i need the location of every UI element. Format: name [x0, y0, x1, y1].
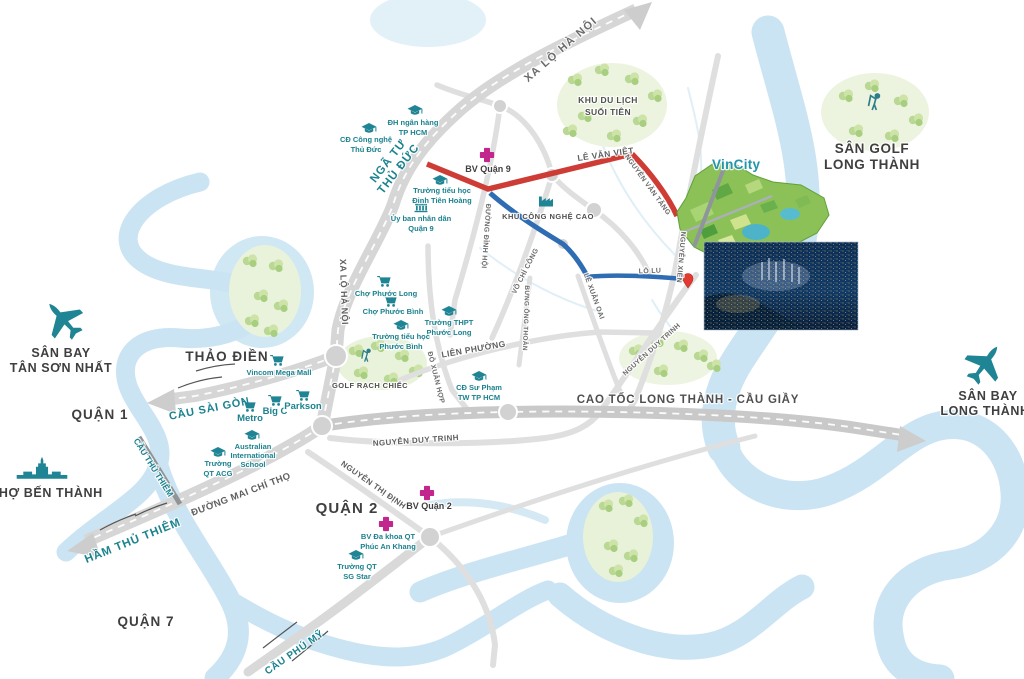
poi-label-acg-1: Trường: [204, 459, 231, 468]
road-label-cao-toc: CAO TỐC LONG THÀNH - CẦU GIẦY: [577, 392, 800, 406]
market-icon-cho-phuoc-long: [377, 276, 390, 287]
district-label-quan-7: QUẬN 7: [117, 614, 174, 629]
poi-label-sg-star-2: SG Star: [343, 572, 371, 581]
map-canvas: XA LỘ HÀ NỘI NGÃ TƯ THỦ ĐỨC XA LỘ HÀ NỘI…: [0, 0, 1024, 679]
poi-label-pak-2: Phúc An Khang: [360, 542, 416, 551]
road-lo-lu-blue: [586, 276, 683, 279]
area-labels: QUẬN 1 QUẬN 2 QUẬN 7 THẢO ĐIỀN KHU DU LỊ…: [0, 95, 1024, 629]
airport-label-lt-2: LONG THÀNH: [940, 403, 1024, 418]
poi-label-thpt-pl-1: Trường THPT: [425, 318, 474, 327]
poi-label-parkson: Parkson: [284, 401, 322, 412]
road-label-lo-lu: LÒ LU: [639, 266, 662, 276]
ben-thanh-market-icon: [17, 457, 68, 479]
poi-label-dth-2: Đinh Tiên Hoàng: [412, 196, 472, 205]
poi-label-thpt-pl-2: Phước Long: [427, 328, 472, 337]
airplane-icon-long-thanh: [957, 335, 1012, 391]
school-icon-dh-ngan-hang: [408, 105, 423, 115]
school-icon-truong-acg: [211, 447, 226, 457]
school-icon-cd-cong-nghe: [362, 123, 377, 133]
poi-label-th-pb-2: Phước Bình: [379, 342, 423, 351]
landmark-label-suoi-tien-1: KHU DU LỊCH: [578, 95, 638, 105]
market-icon-parkson: [296, 390, 309, 401]
poi-label-uy-ban-2: Quận 9: [408, 224, 433, 233]
poi-label-cd-su-pham-2: TW TP HCM: [458, 393, 500, 402]
district-label-thao-dien: THẢO ĐIỀN: [185, 349, 268, 364]
poi-label-australian-1: Australian: [235, 442, 272, 451]
poi-label-sg-star-1: Trường QT: [337, 562, 377, 571]
road-route-blue: [490, 193, 586, 274]
landmark-label-suoi-tien-2: SUỐI TIÊN: [585, 106, 631, 117]
school-icon-th-phuoc-binh: [394, 320, 409, 330]
airport-label-lt-1: SÂN BAY: [958, 388, 1017, 403]
market-icon-big-c: [268, 395, 281, 406]
poi-label-pak-1: BV Đa khoa QT: [361, 532, 416, 541]
poi-label-th-pb-1: Trường tiểu học: [372, 332, 430, 341]
airplane-icon-tan-son-nhat: [35, 291, 91, 347]
school-icon-sg-star: [349, 550, 364, 560]
poi-label-dh-ngan-hang-1: ĐH ngân hàng: [388, 118, 439, 127]
landmark-label-khu-cong-nghe-cao: KHU CÔNG NGHỆ CAO: [502, 212, 594, 221]
vincity-label: VinCity: [712, 157, 761, 172]
district-label-quan-2: QUẬN 2: [316, 499, 379, 517]
road-label-xa-lo-ha-noi-side: XA LỘ HÀ NỘI: [338, 259, 351, 325]
landmark-label-golf-rach-chiec: GOLF RẠCH CHIẾC: [332, 380, 408, 390]
hospital-icon-phuc-an-khang: [380, 518, 393, 531]
poi-label-acg-2: QT ACG: [204, 469, 233, 478]
poi-label-dth-1: Trường tiểu học: [413, 186, 471, 195]
market-icon-vincom: [270, 355, 283, 366]
road-label-nguyen-van-tang: NGUYỄN VĂN TĂNG: [623, 152, 673, 217]
school-icon-dinh-tien-hoang: [433, 175, 448, 185]
road-nguyen-van-tang-red: [632, 154, 677, 216]
poi-label-dh-ngan-hang-2: TP HCM: [399, 128, 428, 137]
poi-label-australian-3: School: [240, 460, 265, 469]
poi-label-uy-ban-1: Ủy ban nhân dân: [391, 214, 452, 223]
poi-label-cd-cong-nghe-2: Thủ Đức: [351, 145, 382, 154]
airport-label-tsn-1: SÂN BAY: [31, 345, 90, 360]
district-label-quan-1: QUẬN 1: [71, 407, 128, 422]
poi-label-australian-2: International: [230, 451, 275, 460]
hospital-icon-bv-quan-2: [421, 487, 434, 500]
landmark-label-golf-lt-1: SÂN GOLF: [835, 141, 910, 156]
poi-label-cd-su-pham-1: CĐ Sư Phạm: [456, 383, 502, 392]
poi-label-bv-quan-9: BV Quận 9: [465, 164, 511, 174]
poi-label-cd-cong-nghe-1: CĐ Công nghệ: [340, 135, 392, 144]
location-map: XA LỘ HÀ NỘI NGÃ TƯ THỦ ĐỨC XA LỘ HÀ NỘI…: [0, 0, 1024, 679]
landmark-label-cho-ben-thanh: CHỢ BẾN THÀNH: [0, 485, 103, 500]
school-icon-australian: [245, 430, 260, 440]
poi-label-metro: Metro: [237, 413, 263, 424]
poi-label-bv-quan-2: BV Quận 2: [406, 501, 452, 511]
school-icon-cd-su-pham: [472, 371, 487, 381]
poi-label-cho-phuoc-long: Chợ Phước Long: [355, 289, 418, 298]
poi-label-vincom: Vincom Mega Mall: [247, 368, 312, 377]
aerial-photo-inset: [704, 242, 858, 330]
poi-label-cho-phuoc-binh: Chợ Phước Bình: [363, 307, 424, 316]
airport-label-tsn-2: TÂN SƠN NHẤT: [10, 360, 113, 375]
landmark-label-golf-lt-2: LONG THÀNH: [824, 157, 920, 172]
